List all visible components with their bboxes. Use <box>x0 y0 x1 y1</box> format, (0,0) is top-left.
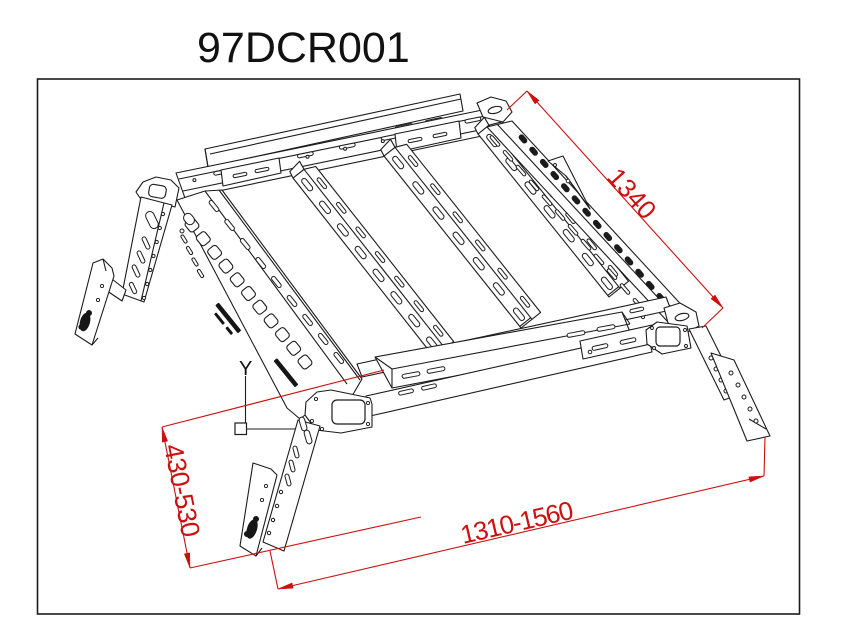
svg-text:97DCR001: 97DCR001 <box>197 24 410 72</box>
